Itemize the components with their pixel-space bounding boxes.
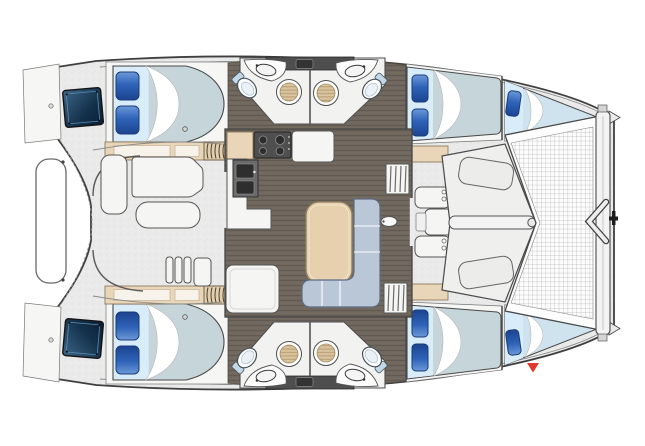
pillow: [412, 75, 428, 102]
pillow: [116, 72, 139, 100]
pillow: [116, 106, 139, 134]
swim-platform: [23, 64, 61, 143]
salon: [223, 129, 414, 317]
companionway-steps: [386, 164, 409, 194]
forward-cabin: [406, 64, 502, 144]
cockpit-bench: [136, 202, 200, 228]
companionway-steps: [384, 283, 407, 313]
cockpit-side-bench: [101, 155, 127, 214]
forward-table-leaf: [416, 213, 426, 231]
cleat: [183, 127, 188, 132]
pillow: [505, 90, 521, 117]
shower-pan: [277, 80, 302, 105]
cockpit-table: [132, 157, 203, 197]
pillow: [412, 109, 428, 136]
catamaran-deck-plan: [0, 0, 645, 446]
aft-cabin-bed: [113, 66, 224, 142]
cockpit-steps: [166, 257, 211, 286]
galley-lower-counter: [226, 265, 279, 313]
forward-door-handle: [381, 217, 397, 227]
deck-hatch: [296, 60, 313, 69]
dining-table: [306, 202, 352, 283]
galley-stove: [254, 132, 291, 158]
engine-hatch: [63, 87, 104, 127]
shower-pan: [314, 81, 339, 106]
galley-sink: [233, 160, 258, 197]
forward-door-opening: [410, 198, 414, 246]
forward-table: [425, 209, 452, 235]
anchor-channel: [449, 216, 535, 229]
galley-counter: [292, 131, 334, 162]
